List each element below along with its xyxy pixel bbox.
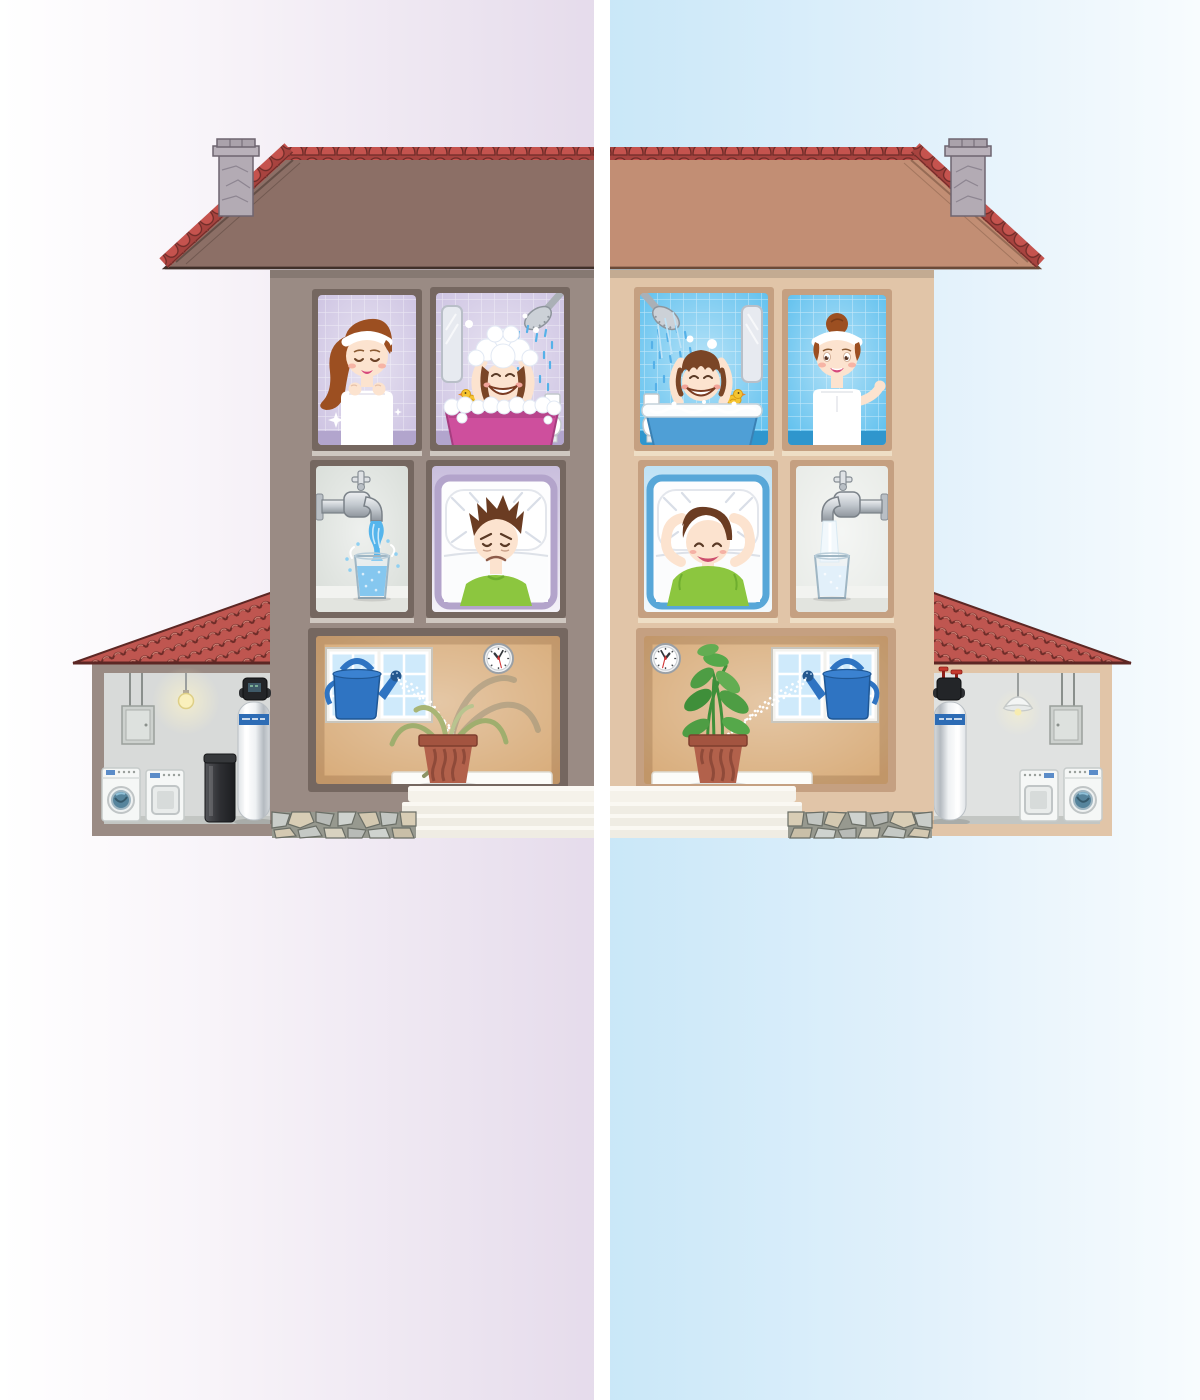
pink-bathtub — [444, 397, 561, 446]
house-comparison-illustration: Cutaway comparison illustration of a two… — [0, 0, 1200, 1400]
softener-control-head — [239, 678, 271, 700]
scene-boy-sleeping-well — [666, 507, 750, 606]
brine-tank — [204, 754, 236, 822]
center-divider — [594, 0, 610, 1400]
hanging-bulb — [179, 694, 194, 709]
illustration-stage: Cutaway comparison illustration of a two… — [0, 0, 1200, 1400]
wall-clock-left — [484, 644, 513, 673]
wall-clock-right — [651, 644, 680, 673]
